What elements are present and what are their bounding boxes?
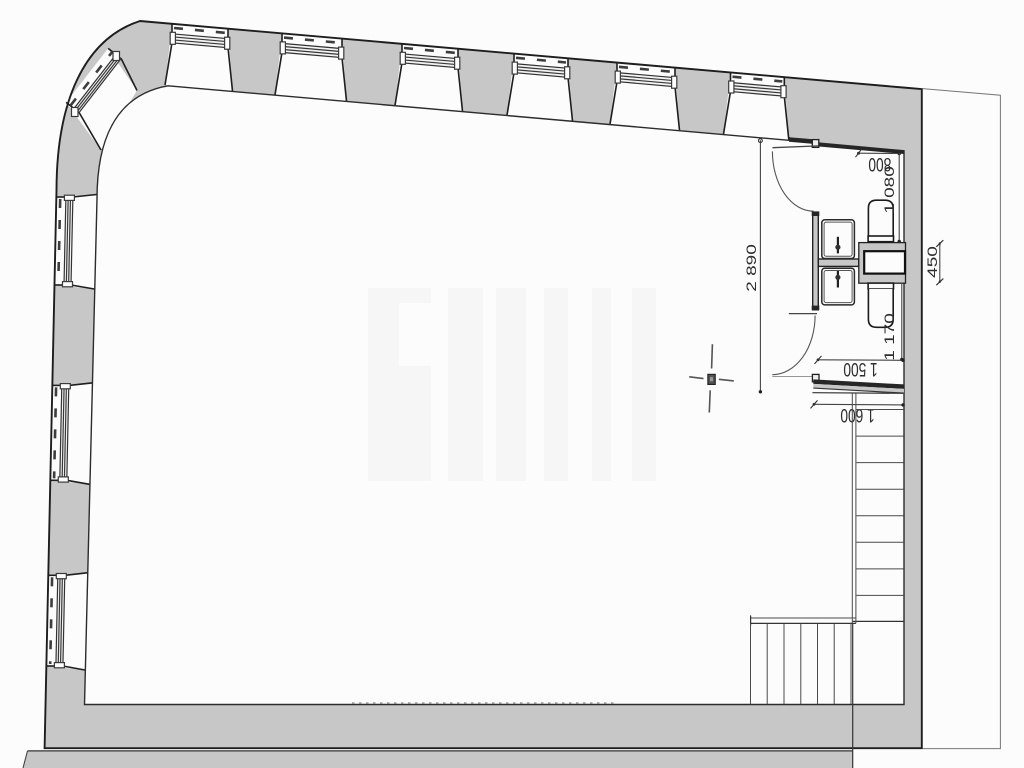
svg-text:450: 450 bbox=[924, 246, 940, 278]
svg-text:1 500: 1 500 bbox=[843, 358, 877, 380]
svg-text:2 890: 2 890 bbox=[743, 244, 759, 292]
svg-text:1 170: 1 170 bbox=[881, 313, 897, 361]
svg-text:1 600: 1 600 bbox=[840, 404, 874, 426]
svg-text:1 080: 1 080 bbox=[882, 166, 898, 214]
